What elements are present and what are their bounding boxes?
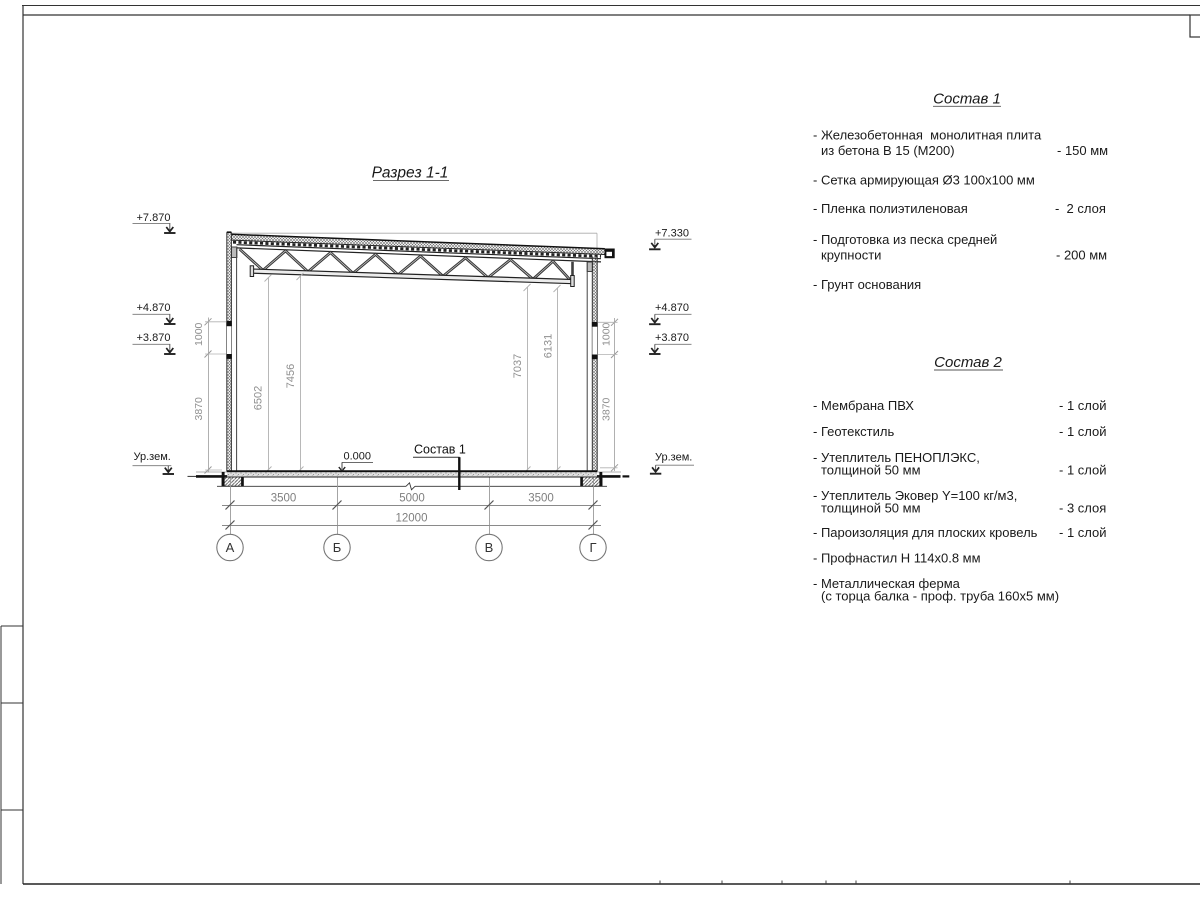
svg-text:5000: 5000 xyxy=(399,493,425,505)
svg-text:- Грунт основания: - Грунт основания xyxy=(813,277,921,292)
svg-text:1000: 1000 xyxy=(193,322,205,346)
svg-text:Г: Г xyxy=(589,540,596,555)
svg-text:(с торца балка - проф. труба 1: (с торца балка - проф. труба 160х5 мм) xyxy=(821,589,1059,604)
svg-text:- 1 слой: - 1 слой xyxy=(1059,424,1107,439)
svg-text:+4.870: +4.870 xyxy=(655,302,689,314)
svg-text:7037: 7037 xyxy=(512,354,524,378)
svg-text:- 2 слоя: - 2 слоя xyxy=(1055,201,1106,216)
svg-text:- 200 мм: - 200 мм xyxy=(1056,248,1107,263)
svg-text:толщиной 50 мм: толщиной 50 мм xyxy=(821,501,921,516)
svg-text:- Пленка полиэтиленовая: - Пленка полиэтиленовая xyxy=(813,201,968,216)
svg-text:Состав 1: Состав 1 xyxy=(414,443,466,457)
svg-text:+4.870: +4.870 xyxy=(137,302,171,314)
svg-text:6131: 6131 xyxy=(543,334,555,358)
svg-text:- Подготовка из песка средней: - Подготовка из песка средней xyxy=(813,232,997,247)
svg-text:Ур.зем.: Ур.зем. xyxy=(134,451,171,463)
svg-text:Состав 2: Состав 2 xyxy=(934,354,1002,371)
svg-text:из бетона В 15 (М200): из бетона В 15 (М200) xyxy=(821,143,955,158)
svg-text:3870: 3870 xyxy=(193,397,205,421)
svg-text:0.000: 0.000 xyxy=(344,451,372,463)
svg-text:- Пароизоляция для плоских кро: - Пароизоляция для плоских кровель xyxy=(813,525,1038,540)
svg-text:В: В xyxy=(485,540,494,555)
svg-text:- Сетка армирующая Ø3 100х100: - Сетка армирующая Ø3 100х100 мм xyxy=(813,172,1035,187)
svg-text:- 1 слой: - 1 слой xyxy=(1059,462,1107,477)
svg-text:- 3 слоя: - 3 слоя xyxy=(1059,501,1106,516)
svg-text:+7.870: +7.870 xyxy=(137,212,171,224)
svg-text:7456: 7456 xyxy=(285,364,297,388)
svg-text:толщиной 50 мм: толщиной 50 мм xyxy=(821,462,921,477)
svg-text:+3.870: +3.870 xyxy=(137,332,171,344)
svg-text:Состав 1: Состав 1 xyxy=(933,90,1001,107)
svg-text:- Геотекстиль: - Геотекстиль xyxy=(813,424,894,439)
svg-text:Б: Б xyxy=(333,540,342,555)
svg-text:+3.870: +3.870 xyxy=(655,332,689,344)
svg-text:- Профнастил Н 114х0.8 мм: - Профнастил Н 114х0.8 мм xyxy=(813,551,981,566)
svg-text:- Мембрана ПВХ: - Мембрана ПВХ xyxy=(813,398,914,413)
svg-text:крупности: крупности xyxy=(821,248,881,263)
svg-text:3870: 3870 xyxy=(601,397,613,421)
svg-text:А: А xyxy=(226,540,235,555)
svg-text:Разрез 1-1: Разрез 1-1 xyxy=(372,165,449,182)
svg-text:Ур.зем.: Ур.зем. xyxy=(655,452,692,464)
svg-text:3500: 3500 xyxy=(528,493,554,505)
svg-text:12000: 12000 xyxy=(396,513,428,525)
svg-text:- Железобетонная монолитная п: - Железобетонная монолитная плита xyxy=(813,127,1042,142)
svg-text:- 1 слой: - 1 слой xyxy=(1059,398,1107,413)
svg-text:3500: 3500 xyxy=(271,493,297,505)
svg-text:- 1 слой: - 1 слой xyxy=(1059,525,1107,540)
svg-text:1000: 1000 xyxy=(601,322,613,346)
svg-text:+7.330: +7.330 xyxy=(655,228,689,240)
svg-text:6502: 6502 xyxy=(253,386,265,410)
svg-text:- 150 мм: - 150 мм xyxy=(1057,143,1108,158)
